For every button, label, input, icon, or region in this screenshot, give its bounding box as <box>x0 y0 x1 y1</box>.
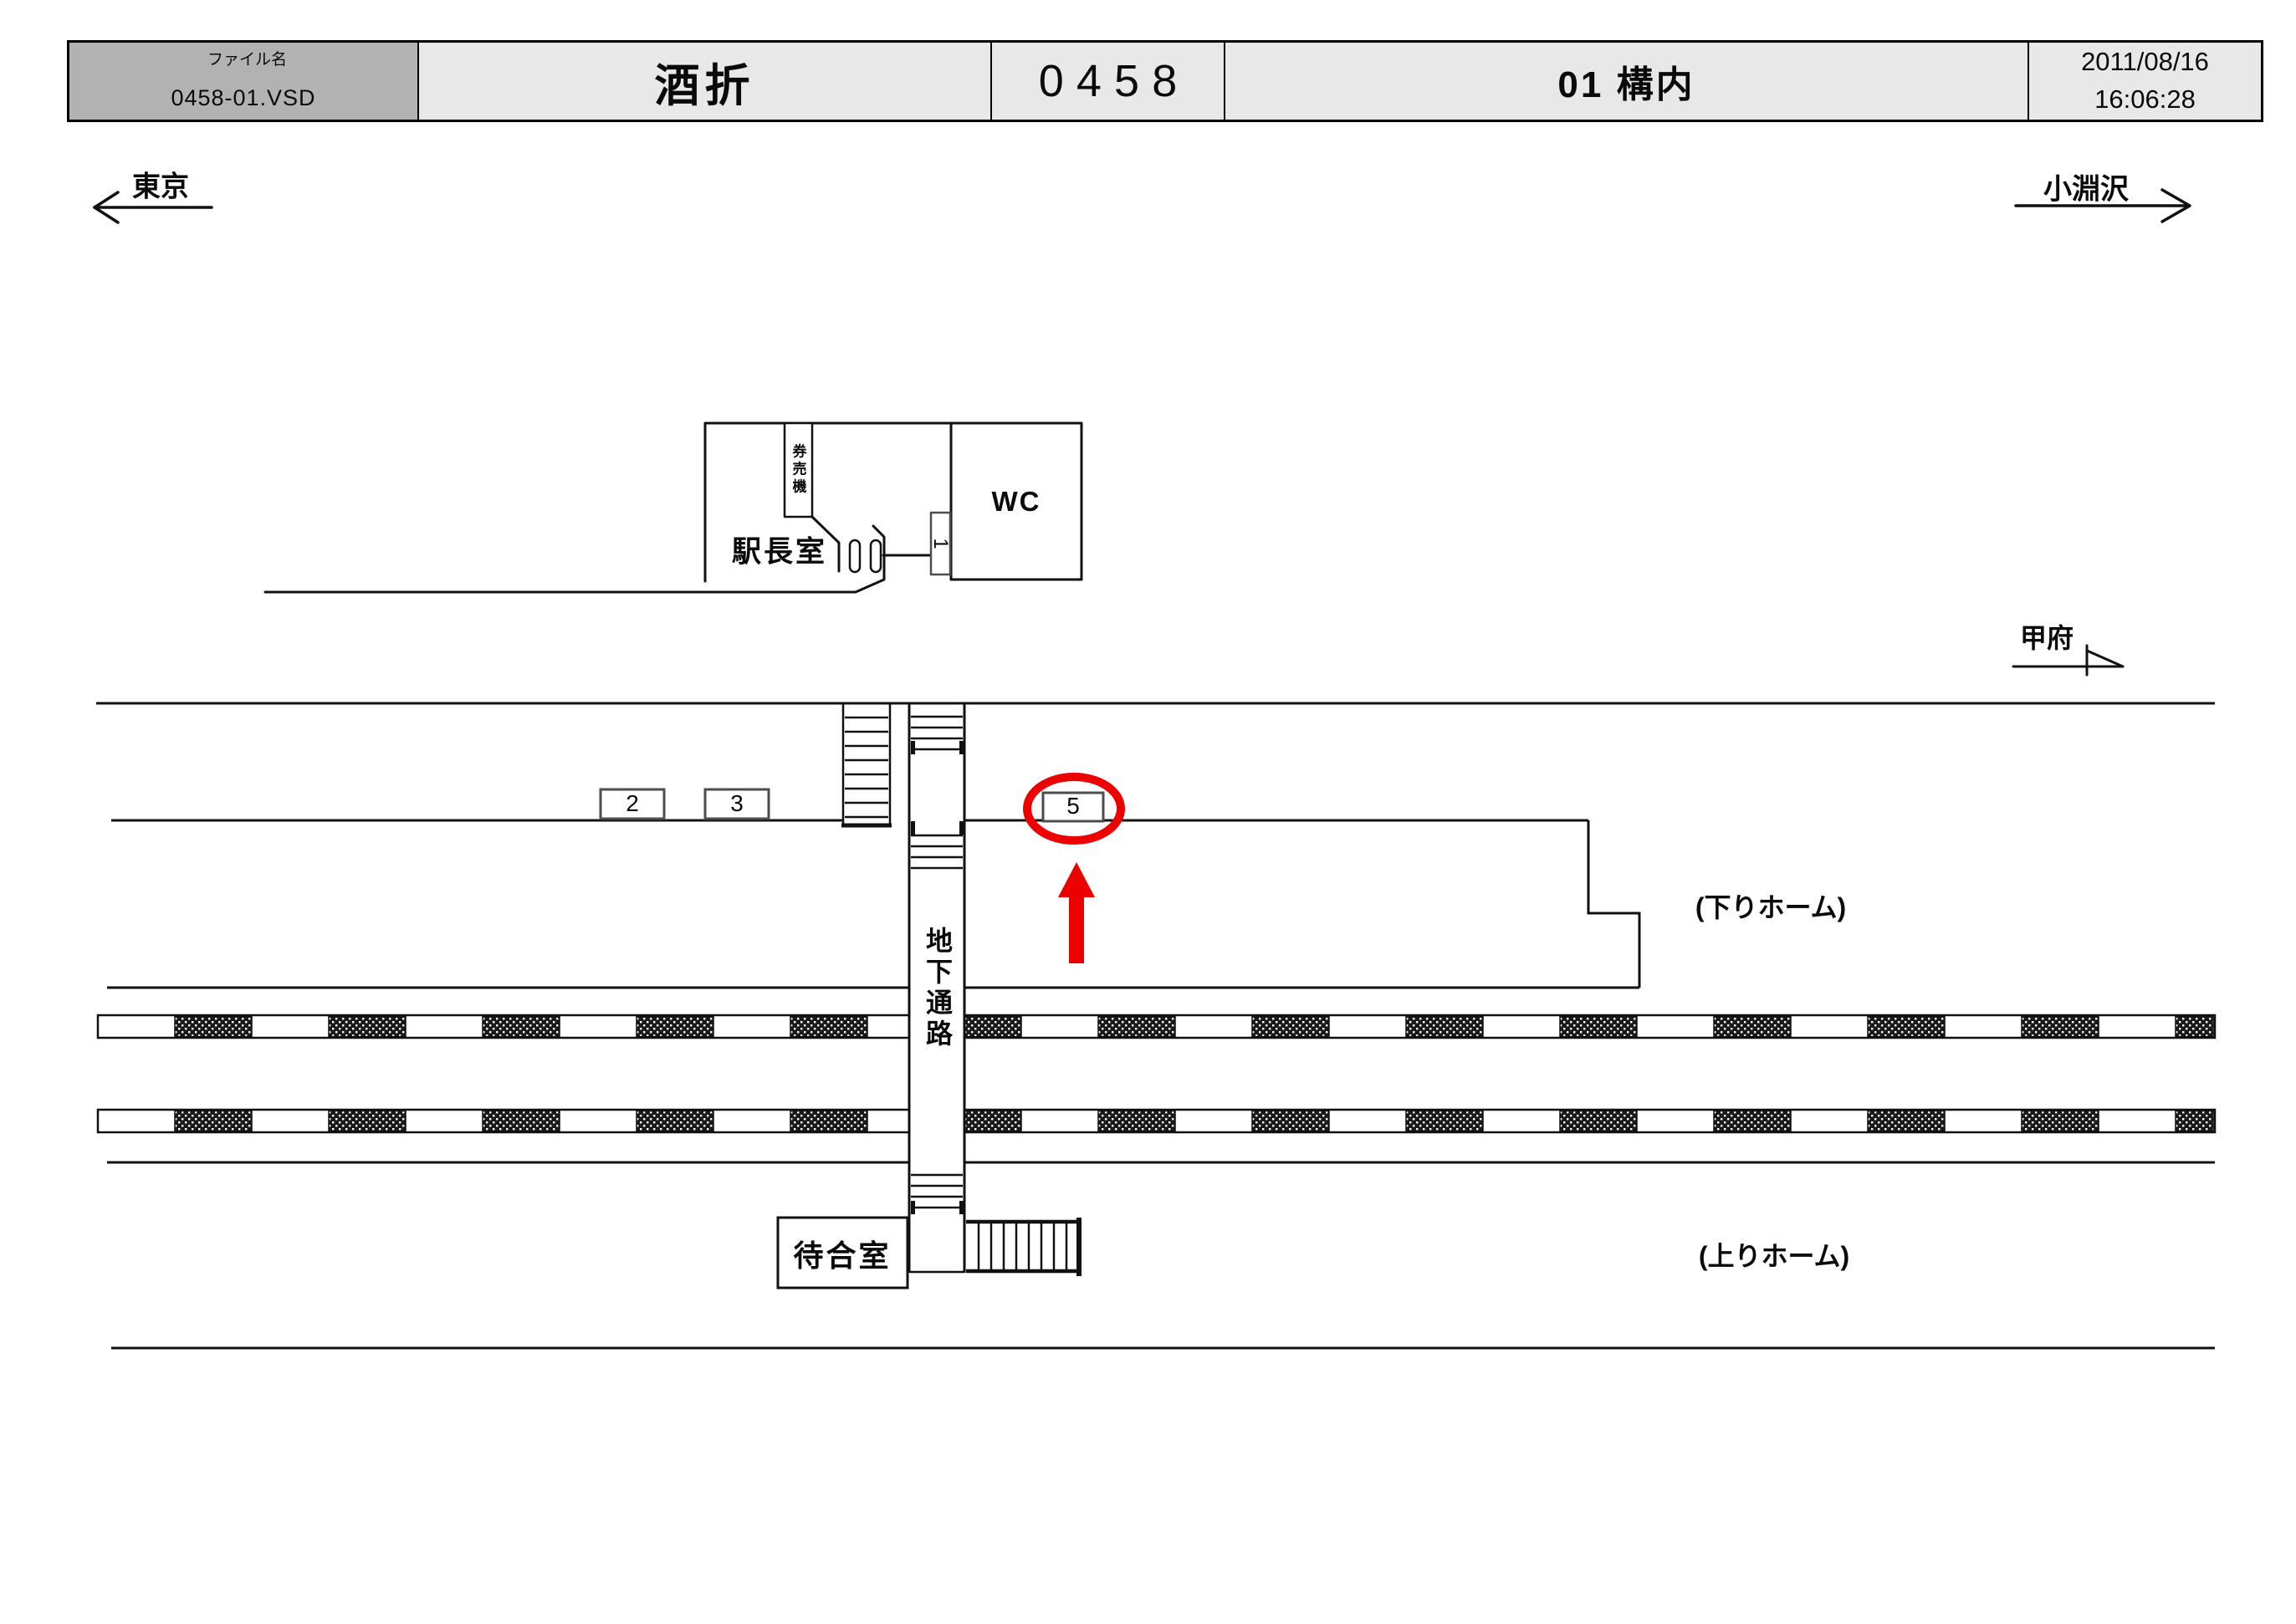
up-platform-label: (上りホーム) <box>1699 1235 1849 1274</box>
station-name-cell: 酒折 <box>419 43 992 120</box>
station-master-room-label: 駅長室 <box>732 529 827 571</box>
gate-pillar-1 <box>850 540 860 572</box>
underground-passage-label: 地下通路 <box>918 927 957 1050</box>
station-diagram <box>0 0 2296 1624</box>
down-platform-label: (下りホーム) <box>1695 886 1846 925</box>
sign-number-1: 1 <box>928 538 952 549</box>
timestamp-cell: 2011/08/16 16:06:28 <box>2029 43 2261 120</box>
up-platform-stair <box>966 1218 1082 1276</box>
sign-number-2: 2 <box>626 790 639 817</box>
direction-label-tokyo: 東京 <box>132 164 189 205</box>
file-name-label: ファイル名 <box>200 43 287 69</box>
gate-pillar-2 <box>871 540 881 572</box>
waiting-room-label: 待合室 <box>793 1232 891 1275</box>
station-building <box>265 423 1082 592</box>
platform-stairs-upper <box>841 703 892 826</box>
wc-label: WC <box>992 486 1041 518</box>
file-name-value: 0458-01.VSD <box>171 85 315 120</box>
highlight-arrow <box>1058 862 1095 963</box>
sign-number-3: 3 <box>730 790 744 817</box>
file-name-cell: ファイル名 0458-01.VSD <box>69 43 419 120</box>
direction-label-kobuchizawa: 小淵沢 <box>2043 166 2129 207</box>
direction-label-kofu: 甲府 <box>2020 617 2074 656</box>
station-layout-page: ファイル名 0458-01.VSD 酒折 0458 01 構内 2011/08/… <box>0 0 2296 1624</box>
time-text: 16:06:28 <box>2094 81 2196 119</box>
sheet-title-cell: 01 構内 <box>1225 43 2029 120</box>
station-code-cell: 0458 <box>992 43 1225 120</box>
date-text: 2011/08/16 <box>2081 43 2209 81</box>
title-block: ファイル名 0458-01.VSD 酒折 0458 01 構内 2011/08/… <box>67 40 2263 122</box>
sign-number-5: 5 <box>1066 793 1080 820</box>
ticket-machine-label: 券売機 <box>788 444 809 497</box>
